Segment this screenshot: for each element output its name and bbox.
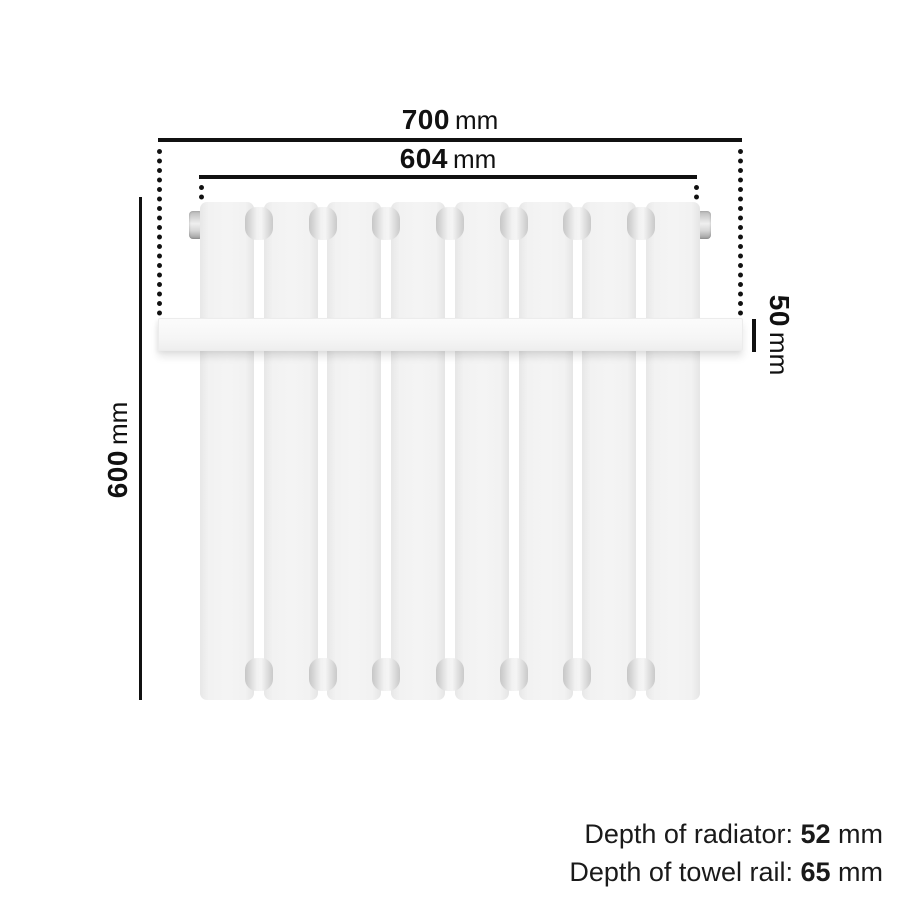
overall-width-label: 700mm: [158, 104, 742, 136]
depth-of-radiator-note: Depth of radiator: 52 mm: [569, 815, 883, 853]
radiator-width-label: 604mm: [199, 143, 697, 175]
rail-height-label: 50mm: [763, 295, 795, 375]
height-dimension-line: [139, 197, 142, 700]
radiator-width-unit: mm: [453, 144, 496, 174]
projection-dotted-line-right: [738, 147, 743, 317]
overall-width-dimension-line: [158, 138, 742, 142]
height-unit: mm: [103, 402, 133, 445]
depth-notes: Depth of radiator: 52 mm Depth of towel …: [569, 815, 883, 891]
panel-connector-bottom: [309, 658, 337, 691]
panel-connector-bottom: [372, 658, 400, 691]
rail-height-unit: mm: [764, 332, 794, 375]
panel-connector-top: [627, 207, 655, 240]
panel-connector-bottom: [245, 658, 273, 691]
projection-dotted-line-inner-right: [694, 183, 699, 204]
towel-rail-bar: [158, 318, 743, 351]
radiator-dimension-diagram: 700mm 604mm 600mm 50mm Depth of radiator…: [0, 0, 900, 900]
overall-width-unit: mm: [455, 105, 498, 135]
projection-dotted-line-left: [157, 147, 162, 317]
panel-connector-top: [436, 207, 464, 240]
radiator-panel: [391, 202, 445, 700]
radiator-panel: [646, 202, 700, 700]
radiator-panel: [455, 202, 509, 700]
overall-width-value: 700: [402, 104, 450, 135]
projection-dotted-line-inner-left: [199, 183, 204, 204]
height-label: 600mm: [102, 402, 134, 499]
panel-connector-bottom: [627, 658, 655, 691]
radiator-panel: [264, 202, 318, 700]
radiator-panel: [519, 202, 573, 700]
panel-connector-top: [563, 207, 591, 240]
radiator-panel: [327, 202, 381, 700]
radiator-body: [200, 202, 700, 700]
depth-rail-value: 65: [800, 857, 830, 887]
panel-connector-top: [309, 207, 337, 240]
depth-of-towel-rail-note: Depth of towel rail: 65 mm: [569, 853, 883, 891]
panel-connector-bottom: [500, 658, 528, 691]
radiator-width-dimension-line: [199, 175, 697, 179]
rail-height-value: 50: [764, 295, 795, 327]
height-value: 600: [102, 450, 133, 498]
depth-radiator-unit: mm: [831, 819, 883, 849]
radiator-panel: [200, 202, 254, 700]
panel-connector-bottom: [563, 658, 591, 691]
rail-height-dimension-line: [752, 319, 756, 352]
depth-rail-unit: mm: [831, 857, 883, 887]
panel-connector-bottom: [436, 658, 464, 691]
panel-connector-top: [372, 207, 400, 240]
depth-radiator-label: Depth of radiator:: [584, 819, 800, 849]
panel-connector-top: [500, 207, 528, 240]
depth-radiator-value: 52: [800, 819, 830, 849]
panel-connector-top: [245, 207, 273, 240]
radiator-width-value: 604: [400, 143, 448, 174]
radiator-panel: [582, 202, 636, 700]
depth-rail-label: Depth of towel rail:: [569, 857, 800, 887]
